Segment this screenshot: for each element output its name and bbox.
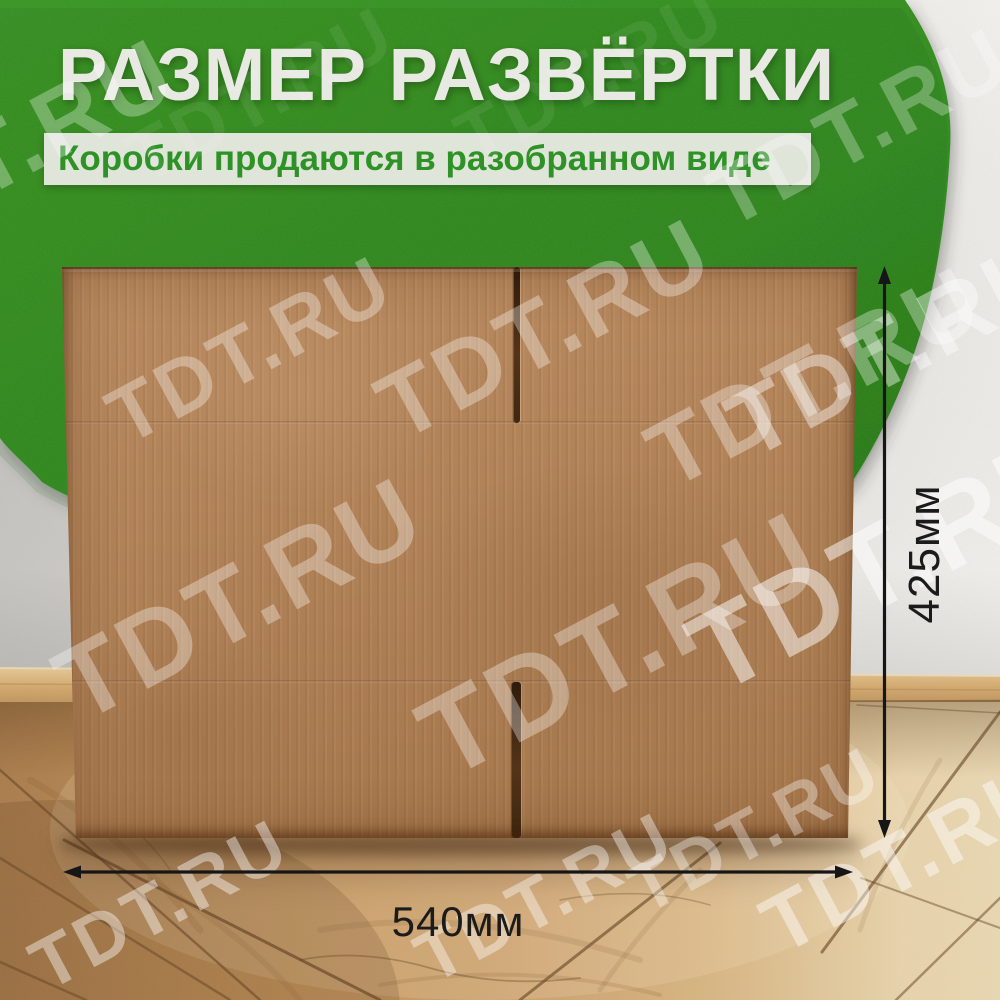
cardboard-edge-shading bbox=[62, 267, 857, 838]
page-title: РАЗМЕР РАЗВЁРТКИ bbox=[58, 38, 835, 112]
product-infographic: РАЗМЕР РАЗВЁРТКИ Коробки продаются в раз… bbox=[0, 0, 1000, 1000]
height-dimension-label: 425мм bbox=[900, 485, 950, 624]
width-dimension-label: 540мм bbox=[392, 898, 525, 946]
cardboard-sheet bbox=[62, 267, 857, 838]
subtitle-banner: Коробки продаются в разобранном виде bbox=[44, 133, 811, 185]
subtitle-text: Коробки продаются в разобранном виде bbox=[58, 139, 771, 179]
